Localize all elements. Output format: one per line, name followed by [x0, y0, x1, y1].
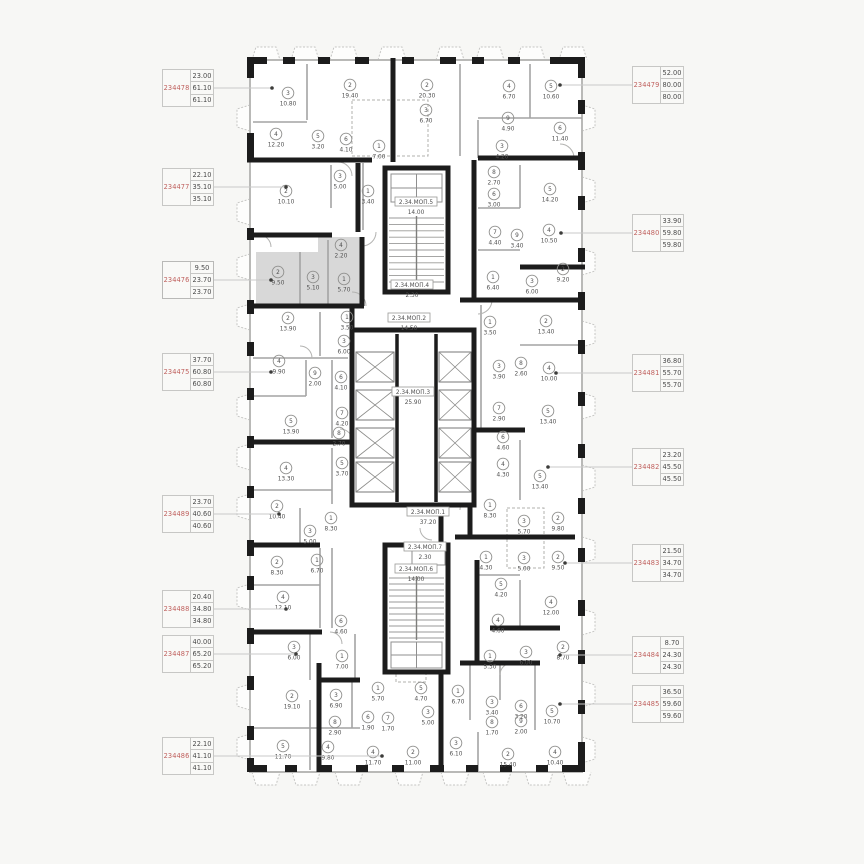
- unit-id: 234475: [163, 354, 191, 390]
- room-area: 2.60: [515, 372, 528, 378]
- unit-area-value: 8.70: [661, 637, 683, 649]
- room-number: 6: [519, 704, 523, 710]
- balcony-icon: [395, 772, 423, 785]
- unit-area-value: 60.80: [191, 379, 213, 390]
- elevator-core: [352, 330, 474, 505]
- room-area: 2.70: [333, 442, 346, 448]
- mop-area: 14.00: [408, 210, 425, 216]
- unit-area-value: 35.10: [191, 181, 213, 193]
- unit-area-value: 45.50: [661, 461, 683, 473]
- room-area: 2.90: [329, 731, 342, 737]
- room-area: 5.70: [518, 530, 531, 536]
- room-area: 1.90: [362, 726, 375, 732]
- room-number: 4: [371, 750, 375, 756]
- room-number: 6: [558, 126, 562, 132]
- room-area: 8.30: [271, 571, 284, 577]
- room-number: 4: [326, 745, 330, 751]
- unit-area-value: 33.90: [661, 215, 683, 227]
- mop-name: 2.34.МОП.7: [408, 545, 443, 551]
- connector-dot: [284, 185, 288, 189]
- unit-label-box-234477[interactable]: 23447722.1035.1035.10: [162, 168, 214, 206]
- room-area: 2.00: [309, 382, 322, 388]
- room-number: 3: [426, 710, 430, 716]
- room-area: 2.20: [335, 254, 348, 260]
- connector-dot: [294, 652, 298, 656]
- room-area: 5.70: [372, 697, 385, 703]
- room-number: 6: [501, 435, 505, 441]
- balcony-icon: [237, 199, 250, 225]
- room-area: 4.20: [336, 422, 349, 428]
- room-area: 5.30: [484, 665, 497, 671]
- unit-label-box-234488[interactable]: 23448820.4034.8034.80: [162, 590, 214, 628]
- unit-area-value: 61.10: [191, 82, 213, 94]
- mop-name: 2.34.МОП.5: [399, 200, 434, 206]
- mop-area: 2.30: [406, 293, 419, 299]
- unit-area-value: 59.60: [661, 698, 683, 710]
- room-number: 9: [506, 116, 510, 122]
- room-area: 6.00: [288, 656, 301, 662]
- floor-plan-page: 310.80219.40220.3046.70510.60412.2053.20…: [0, 0, 864, 864]
- room-number: 5: [289, 419, 293, 425]
- unit-label-box-234475[interactable]: 23447537.7060.8060.80: [162, 353, 214, 391]
- room-area: 2.00: [515, 730, 528, 736]
- unit-id: 234482: [633, 449, 661, 485]
- room-area: 3.40: [511, 244, 524, 250]
- unit-area-value: 21.50: [661, 545, 683, 557]
- room-number: 3: [530, 279, 534, 285]
- floor-plan-drawing: 310.80219.40220.3046.70510.60412.2053.20…: [0, 0, 864, 864]
- room-number: 1: [488, 654, 492, 660]
- room-area: 13.90: [283, 430, 300, 436]
- unit-area-value: 40.60: [191, 508, 213, 520]
- unit-area-value: 52.00: [661, 67, 683, 79]
- room-number: 3: [308, 529, 312, 535]
- room-number: 6: [344, 137, 348, 143]
- unit-label-box-234489[interactable]: 23448923.7040.6040.60: [162, 495, 214, 533]
- room-area: 11.70: [365, 761, 382, 767]
- unit-area-value: 59.80: [661, 227, 683, 239]
- room-area: 11.40: [552, 137, 569, 143]
- room-number: 6: [366, 715, 370, 721]
- balcony-icon: [291, 47, 319, 60]
- unit-area-value: 34.80: [191, 616, 213, 627]
- connector-dot: [558, 702, 562, 706]
- unit-area-value: 37.70: [191, 354, 213, 366]
- unit-id: 234488: [163, 591, 191, 627]
- unit-area-value: 34.80: [191, 603, 213, 615]
- unit-area-value: 24.30: [661, 662, 683, 673]
- room-area: 3.90: [493, 375, 506, 381]
- room-area: 6.70: [311, 569, 324, 575]
- room-number: 5: [550, 709, 554, 715]
- unit-label-box-234479[interactable]: 23447952.0080.0080.00: [632, 66, 684, 104]
- mop-area: 37.20: [420, 520, 437, 526]
- room-area: 5.00: [304, 540, 317, 546]
- balcony-icon: [483, 772, 511, 785]
- room-number: 2: [275, 560, 279, 566]
- staircase-top: [385, 168, 448, 292]
- unit-label-box-234487[interactable]: 23448740.0065.2065.20: [162, 635, 214, 673]
- room-area: 4.30: [480, 566, 493, 572]
- room-number: 5: [340, 461, 344, 467]
- connector-dot: [546, 465, 550, 469]
- mop-name: 2.34.МОП.6: [399, 567, 434, 573]
- room-number: 3: [292, 645, 296, 651]
- room-area: 19.10: [284, 705, 301, 711]
- unit-label-box-234486[interactable]: 23448622.1041.1041.10: [162, 737, 214, 775]
- unit-area-value: 34.70: [661, 570, 683, 581]
- room-area: 6.00: [520, 661, 533, 667]
- room-number: 7: [340, 411, 344, 417]
- room-area: 2.90: [493, 417, 506, 423]
- balcony-icon: [292, 772, 320, 785]
- room-number: 1: [484, 555, 488, 561]
- room-area: 6.10: [450, 752, 463, 758]
- room-number: 2: [411, 750, 415, 756]
- room-number: 6: [492, 192, 496, 198]
- room-area: 4.30: [497, 473, 510, 479]
- room-number: 7: [497, 406, 501, 412]
- room-area: 3.50: [484, 331, 497, 337]
- room-number: 4: [284, 466, 288, 472]
- room-number: 1: [329, 516, 333, 522]
- room-number: 2: [348, 83, 352, 89]
- unit-id: 234476: [163, 262, 191, 298]
- room-number: 3: [497, 364, 501, 370]
- room-area: 13.40: [538, 330, 555, 336]
- mop-area: 25.90: [405, 400, 422, 406]
- room-area: 4.10: [340, 148, 353, 154]
- room-number: 3: [338, 174, 342, 180]
- room-area: 6.40: [487, 286, 500, 292]
- room-number: 2: [561, 267, 565, 273]
- room-number: 3: [286, 91, 290, 97]
- room-number: 2: [561, 645, 565, 651]
- room-number: 9: [515, 233, 519, 239]
- unit-label-box-234481[interactable]: 23448136.8055.7055.70: [632, 354, 684, 392]
- mop-name: 2.34.МОП.3: [396, 390, 431, 396]
- room-area: 20.30: [419, 94, 436, 100]
- unit-area-value: 24.30: [661, 649, 683, 661]
- room-area: 5.70: [338, 288, 351, 294]
- room-area: 10.40: [269, 515, 286, 521]
- unit-area-value: 35.10: [191, 194, 213, 205]
- room-area: 5.00: [518, 567, 531, 573]
- room-number: 5: [316, 134, 320, 140]
- room-area: 10.50: [541, 239, 558, 245]
- room-area: 15.40: [500, 763, 517, 769]
- room-number: 4: [501, 462, 505, 468]
- unit-label-box-234484[interactable]: 2344848.7024.3024.30: [632, 636, 684, 674]
- room-number: 4: [496, 618, 500, 624]
- room-area: 4.40: [489, 241, 502, 247]
- unit-area-value: 9.50: [191, 262, 213, 274]
- unit-label-box-234483[interactable]: 23448321.5034.7034.70: [632, 544, 684, 582]
- room-area: 3.00: [488, 203, 501, 209]
- unit-label-box-234485[interactable]: 23448536.5059.6059.60: [632, 685, 684, 723]
- unit-area-value: 60.80: [191, 366, 213, 378]
- room-number: 1: [366, 189, 370, 195]
- room-area: 9.80: [552, 527, 565, 533]
- room-area: 6.90: [330, 704, 343, 710]
- mop-area: 2.30: [419, 555, 432, 561]
- room-number: 2: [425, 83, 429, 89]
- connector-dot: [269, 278, 273, 282]
- room-area: 10.00: [541, 377, 558, 383]
- room-area: 6.70: [452, 700, 465, 706]
- room-area: 13.40: [532, 485, 549, 491]
- room-number: 1: [456, 689, 460, 695]
- room-area: 19.40: [342, 94, 359, 100]
- room-area: 11.70: [275, 755, 292, 761]
- balcony-icon: [252, 772, 280, 785]
- unit-area-value: 22.10: [191, 738, 213, 750]
- connector-dot: [563, 561, 567, 565]
- room-number: 3: [522, 556, 526, 562]
- room-number: 3: [454, 741, 458, 747]
- room-area: 9.50: [272, 281, 285, 287]
- room-area: 4.10: [335, 386, 348, 392]
- unit-area-value: 80.00: [661, 79, 683, 91]
- unit-id: 234483: [633, 545, 661, 581]
- room-number: 5: [281, 744, 285, 750]
- room-area: 9.90: [273, 370, 286, 376]
- room-area: 4.90: [502, 127, 515, 133]
- connector-dot: [558, 83, 562, 87]
- room-number: 4: [339, 243, 343, 249]
- unit-id: 234486: [163, 738, 191, 774]
- room-number: 3: [311, 275, 315, 281]
- balcony-icon: [237, 105, 250, 131]
- mop-name: 2.34.МОП.4: [395, 283, 430, 289]
- unit-id: 234477: [163, 169, 191, 205]
- room-area: 9.50: [552, 566, 565, 572]
- room-area: 9.20: [557, 278, 570, 284]
- balcony-icon: [330, 47, 358, 60]
- connector-dot: [270, 86, 274, 90]
- room-area: 13.30: [278, 477, 295, 483]
- room-number: 5: [538, 474, 542, 480]
- balcony-icon: [335, 772, 363, 785]
- unit-area-value: 55.70: [661, 367, 683, 379]
- unit-area-value: 23.70: [191, 287, 213, 298]
- room-area: 5.00: [422, 721, 435, 727]
- unit-area-value: 41.10: [191, 750, 213, 762]
- room-area: 6.70: [420, 119, 433, 125]
- room-area: 6.70: [503, 95, 516, 101]
- room-area: 12.00: [543, 611, 560, 617]
- room-number: 3: [522, 519, 526, 525]
- connector-dot: [558, 653, 562, 657]
- balcony-icon: [525, 772, 553, 785]
- connector-dot: [380, 754, 384, 758]
- unit-area-value: 23.00: [191, 70, 213, 82]
- mop-area: 14.00: [408, 577, 425, 583]
- room-number: 4: [281, 595, 285, 601]
- balcony-icon: [582, 465, 595, 491]
- room-number: 4: [549, 600, 553, 606]
- room-number: 8: [519, 361, 523, 367]
- room-number: 2: [276, 270, 280, 276]
- unit-id: 234481: [633, 355, 661, 391]
- unit-area-value: 40.60: [191, 521, 213, 532]
- unit-area-value: 23.20: [661, 449, 683, 461]
- room-number: 1: [340, 654, 344, 660]
- room-number: 2: [506, 752, 510, 758]
- unit-area-value: 61.10: [191, 95, 213, 106]
- room-area: 8.70: [557, 656, 570, 662]
- room-area: 8.30: [325, 527, 338, 533]
- mop-name: 2.34.МОП.1: [411, 510, 446, 516]
- room-area: 4.20: [496, 155, 509, 161]
- room-number: 7: [493, 230, 497, 236]
- room-area: 13.40: [540, 420, 557, 426]
- room-area: 4.60: [497, 446, 510, 452]
- room-area: 3.40: [362, 200, 375, 206]
- room-number: 2: [275, 504, 279, 510]
- room-number: 5: [549, 84, 553, 90]
- room-number: 8: [492, 170, 496, 176]
- room-number: 8: [333, 720, 337, 726]
- unit-id: 234485: [633, 686, 661, 722]
- room-area: 6.00: [338, 350, 351, 356]
- room-number: 3: [500, 144, 504, 150]
- room-area: 10.70: [544, 720, 561, 726]
- room-number: 3: [524, 650, 528, 656]
- room-area: 13.90: [280, 327, 297, 333]
- room-number: 1: [342, 277, 346, 283]
- mop-area: 14.50: [401, 326, 418, 332]
- room-number: 2: [556, 516, 560, 522]
- room-area: 7.00: [373, 155, 386, 161]
- room-area: 10.60: [543, 95, 560, 101]
- unit-area-value: 34.70: [661, 557, 683, 569]
- unit-area-value: 36.80: [661, 355, 683, 367]
- connector-dot: [269, 370, 273, 374]
- room-area: 14.20: [542, 198, 559, 204]
- unit-area-value: 22.10: [191, 169, 213, 181]
- unit-area-value: 65.20: [191, 648, 213, 660]
- room-number: 9: [519, 719, 523, 725]
- room-number: 1: [488, 320, 492, 326]
- room-number: 4: [277, 359, 281, 365]
- balcony-icon: [563, 772, 591, 785]
- room-number: 1: [491, 275, 495, 281]
- room-area: 4.20: [495, 593, 508, 599]
- room-number: 9: [313, 371, 317, 377]
- unit-id: 234478: [163, 70, 191, 106]
- room-number: 1: [376, 686, 380, 692]
- room-area: 10.10: [278, 200, 295, 206]
- room-area: 10.40: [547, 761, 564, 767]
- unit-id: 234484: [633, 637, 661, 673]
- room-number: 2: [290, 694, 294, 700]
- room-area: 4.60: [335, 630, 348, 636]
- balcony-icon: [441, 772, 469, 785]
- unit-area-value: 80.00: [661, 92, 683, 103]
- room-number: 1: [377, 144, 381, 150]
- room-area: 7.00: [336, 665, 349, 671]
- room-area: 2.70: [488, 181, 501, 187]
- room-area: 5.10: [307, 286, 320, 292]
- room-number: 8: [490, 720, 494, 726]
- unit-area-value: 36.50: [661, 686, 683, 698]
- room-number: 5: [546, 409, 550, 415]
- unit-area-value: 65.20: [191, 661, 213, 672]
- room-area: 12.20: [268, 143, 285, 149]
- room-area: 3.20: [312, 145, 325, 151]
- room-number: 2: [284, 189, 288, 195]
- unit-area-value: 59.80: [661, 240, 683, 251]
- room-area: 11.00: [405, 761, 422, 767]
- room-area: 1.70: [382, 727, 395, 733]
- unit-id: 234479: [633, 67, 661, 103]
- room-number: 1: [345, 315, 349, 321]
- room-number: 5: [499, 582, 503, 588]
- room-number: 2: [544, 319, 548, 325]
- room-number: 7: [386, 716, 390, 722]
- room-number: 1: [315, 558, 319, 564]
- room-area: 4.60: [492, 629, 505, 635]
- connector-dot: [559, 231, 563, 235]
- room-number: 4: [547, 228, 551, 234]
- room-number: 8: [337, 431, 341, 437]
- unit-id: 234489: [163, 496, 191, 532]
- unit-id: 234480: [633, 215, 661, 251]
- room-area: 3.40: [486, 711, 499, 717]
- room-number: 4: [547, 366, 551, 372]
- room-number: 2: [286, 316, 290, 322]
- room-area: 1.70: [486, 731, 499, 737]
- room-number: 3: [334, 693, 338, 699]
- balcony-icon: [237, 254, 250, 280]
- room-number: 1: [488, 503, 492, 509]
- unit-area-value: 23.70: [191, 496, 213, 508]
- connector-dot: [554, 371, 558, 375]
- unit-id: 234487: [163, 636, 191, 672]
- unit-area-value: 40.00: [191, 636, 213, 648]
- room-area: 8.30: [484, 514, 497, 520]
- room-number: 6: [339, 619, 343, 625]
- room-area: 3.70: [336, 472, 349, 478]
- room-area: 10.80: [280, 102, 297, 108]
- unit-label-box-234480[interactable]: 23448033.9059.8059.80: [632, 214, 684, 252]
- unit-area-value: 55.70: [661, 380, 683, 391]
- connector-dot: [284, 607, 288, 611]
- room-number: 4: [274, 132, 278, 138]
- room-number: 5: [548, 187, 552, 193]
- room-area: 3.50: [341, 326, 354, 332]
- room-number: 5: [419, 686, 423, 692]
- balcony-icon: [517, 47, 545, 60]
- room-number: 3: [342, 339, 346, 345]
- unit-area-value: 59.60: [661, 711, 683, 722]
- unit-label-box-234482[interactable]: 23448223.2045.5045.50: [632, 448, 684, 486]
- room-number: 3: [490, 700, 494, 706]
- unit-area-value: 45.50: [661, 474, 683, 485]
- connector-dot: [277, 512, 281, 516]
- room-area: 5.00: [334, 185, 347, 191]
- room-number: 6: [339, 375, 343, 381]
- room-area: 6.00: [526, 290, 539, 296]
- unit-label-box-234476[interactable]: 2344769.5023.7023.70: [162, 261, 214, 299]
- unit-area-value: 20.40: [191, 591, 213, 603]
- room-area: 4.70: [415, 697, 428, 703]
- unit-label-box-234478[interactable]: 23447823.0061.1061.10: [162, 69, 214, 107]
- room-number: 4: [507, 84, 511, 90]
- room-number: 2: [556, 555, 560, 561]
- room-number: 4: [553, 750, 557, 756]
